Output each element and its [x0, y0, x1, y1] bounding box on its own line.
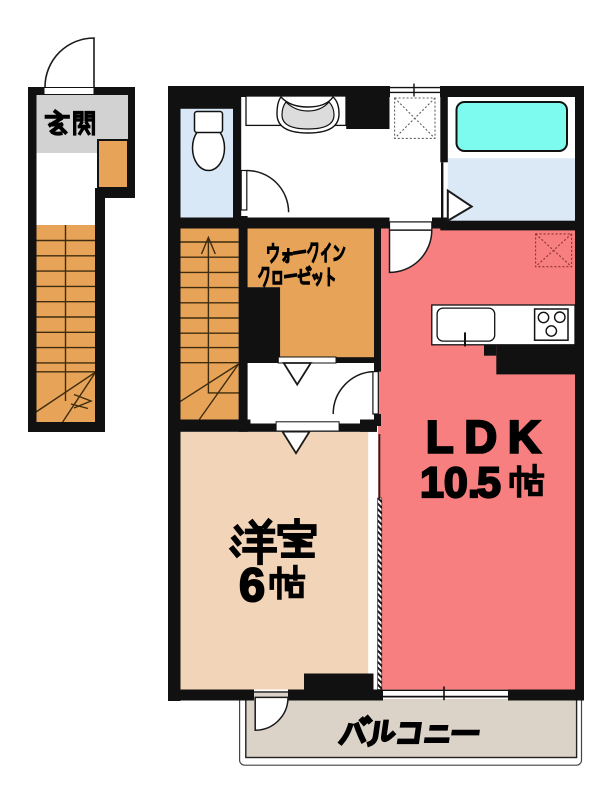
svg-text:6: 6: [239, 558, 265, 611]
svg-text:5: 5: [477, 459, 501, 507]
svg-text:10.: 10.: [420, 459, 480, 507]
svg-text:LDK: LDK: [426, 412, 551, 463]
